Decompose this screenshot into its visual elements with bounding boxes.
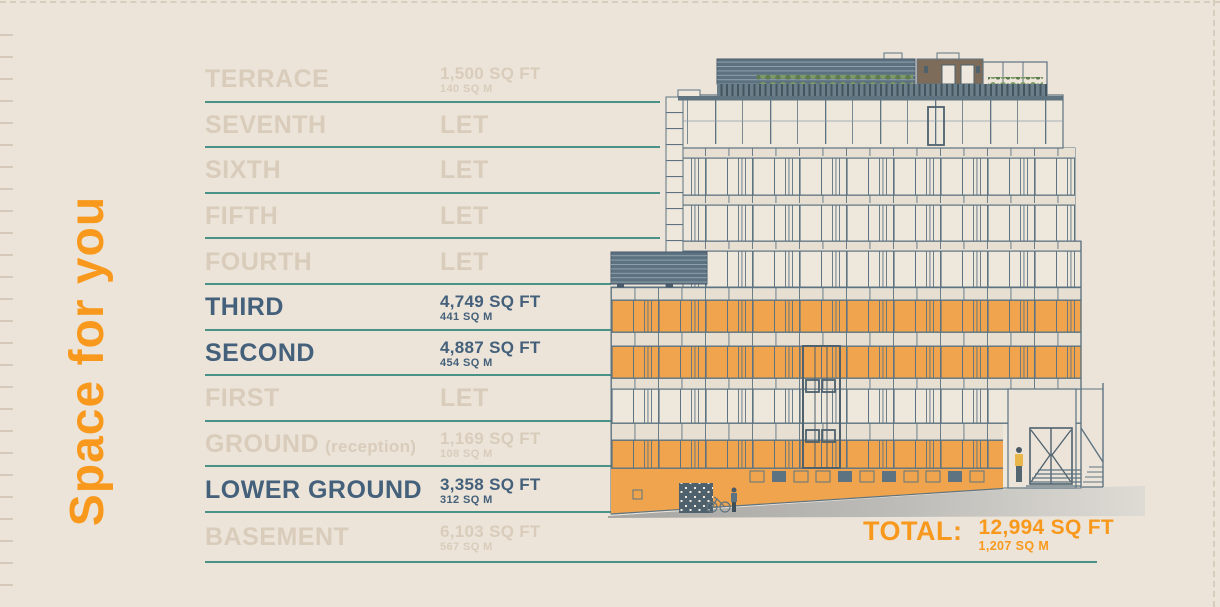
floor-row: SEVENTH LET	[205, 103, 625, 149]
floor-row: FOURTH LET	[205, 239, 625, 285]
floor-row: FIFTH LET	[205, 194, 625, 240]
floor-let-label: LET	[440, 248, 489, 277]
floor-let-label: LET	[440, 384, 489, 413]
floor-area-sqft: 6,103 SQ FT	[440, 522, 541, 541]
floor-name: GROUND	[205, 430, 319, 458]
bottom-rule-line	[205, 561, 1097, 563]
floor-name: TERRACE	[205, 65, 329, 93]
floor-area-sqm: 140 SQ M	[440, 83, 541, 95]
floor-name: FIFTH	[205, 202, 278, 230]
floor-area-sqft: 4,749 SQ FT	[440, 292, 541, 311]
floor-area-sqft: 1,169 SQ FT	[440, 429, 541, 448]
floor-row: TERRACE 1,500 SQ FT 140 SQ M	[205, 57, 625, 103]
floor-name: SIXTH	[205, 156, 281, 184]
total-area-sqft: 12,994 SQ FT	[978, 516, 1114, 539]
floor-name: THIRD	[205, 293, 284, 321]
floor-name: FOURTH	[205, 248, 312, 276]
floor-row: THIRD 4,749 SQ FT 441 SQ M	[205, 285, 625, 331]
floor-name: SEVENTH	[205, 111, 327, 139]
floor-let-label: LET	[440, 111, 489, 140]
floor-area-sqm: 441 SQ M	[440, 311, 541, 323]
total-area-sqm: 1,207 SQ M	[978, 539, 1114, 553]
total-label: TOTAL:	[863, 516, 962, 546]
page: { "title": { "text": "Space for you" }, …	[0, 0, 1220, 607]
perforated-panel	[679, 483, 713, 513]
floor-area-sqm: 108 SQ M	[440, 448, 541, 460]
floor-row: SIXTH LET	[205, 148, 625, 194]
floor-row: LOWER GROUND 3,358 SQ FT 312 SQ M	[205, 467, 625, 513]
floor-area-sqm: 567 SQ M	[440, 541, 541, 553]
floor-name: LOWER GROUND	[205, 476, 422, 504]
floor-row: SECOND 4,887 SQ FT 454 SQ M	[205, 331, 625, 377]
floor-name: BASEMENT	[205, 523, 349, 551]
total-block: TOTAL: 12,994 SQ FT 1,207 SQ M	[863, 516, 1114, 553]
floor-let-label: LET	[440, 202, 489, 231]
floor-row: FIRST LET	[205, 376, 625, 422]
ground-slope	[608, 486, 1145, 518]
floor-row: GROUND(reception) 1,169 SQ FT 108 SQ M	[205, 422, 625, 468]
page-border-left-ticks	[0, 14, 13, 594]
floor-name-suffix: (reception)	[325, 437, 416, 456]
floor-area-sqm: 454 SQ M	[440, 357, 541, 369]
floor-area-sqm: 312 SQ M	[440, 494, 541, 506]
floor-name: FIRST	[205, 384, 280, 412]
person-figure-shopfront	[731, 488, 737, 513]
page-border-right-dashed	[1213, 0, 1215, 607]
floor-area-sqft: 4,887 SQ FT	[440, 338, 541, 357]
bicycle-figure	[707, 497, 730, 512]
person-figure-entrance	[1015, 447, 1023, 482]
floor-row: BASEMENT 6,103 SQ FT 567 SQ M	[205, 513, 625, 563]
floor-area-sqft: 1,500 SQ FT	[440, 64, 541, 83]
page-border-top-dashed	[0, 1, 1220, 3]
floor-let-label: LET	[440, 156, 489, 185]
floor-name: SECOND	[205, 339, 315, 367]
page-title: Space for you	[57, 131, 119, 591]
floor-area-sqft: 3,358 SQ FT	[440, 475, 541, 494]
floor-schedule: TERRACE 1,500 SQ FT 140 SQ M SEVENTH LET…	[205, 57, 625, 563]
